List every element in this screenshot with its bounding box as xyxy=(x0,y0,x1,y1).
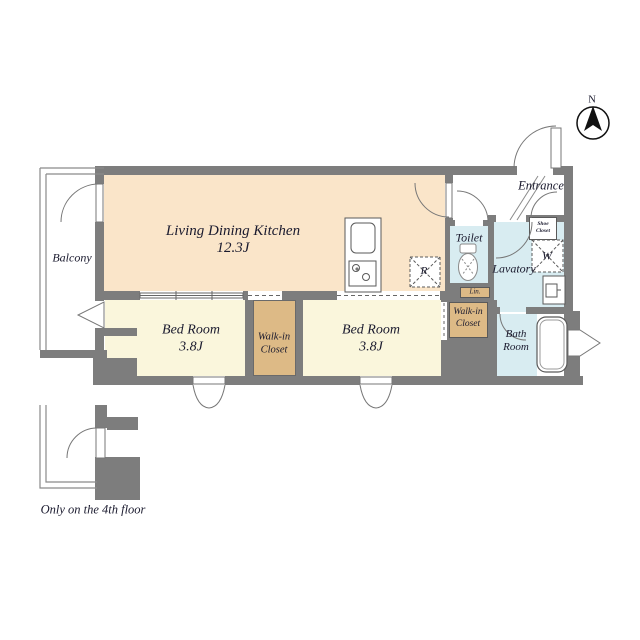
bedroom1-label: Bed Room xyxy=(162,324,220,339)
walkin-closet-middle-label-2: Closet xyxy=(261,344,288,355)
linen-label: Lin. xyxy=(469,288,480,295)
entrance-label: Entrance xyxy=(518,179,564,192)
linework-layer xyxy=(0,0,640,640)
balcony-door xyxy=(61,184,103,222)
compass-icon xyxy=(577,106,609,139)
balcony-label: Balcony xyxy=(52,252,91,265)
floor-plan: Living Dining Kitchen 12.3J Balcony Bed … xyxy=(0,0,640,640)
bathroom-vent-window xyxy=(568,330,600,356)
bathroom-label-2: Room xyxy=(503,342,529,354)
walkin-closet-right-label-2: Closet xyxy=(456,320,480,330)
bedroom1-balcony-door-icon xyxy=(78,302,104,328)
bedroom2-label: Bed Room xyxy=(342,324,400,339)
ldk-label: Living Dining Kitchen xyxy=(166,224,300,240)
kitchen-counter xyxy=(345,218,381,292)
compass-north-label: N xyxy=(588,94,596,105)
kitchen-stove xyxy=(349,261,376,286)
walkin-closet-right-label-1: Walk-in xyxy=(453,308,482,318)
entrance-door xyxy=(514,126,561,168)
toilet-door-arc xyxy=(457,191,488,222)
toilet-fixture xyxy=(459,244,478,281)
washbasin xyxy=(543,276,565,304)
shoe-closet-label-2: Closet xyxy=(536,229,550,235)
ldk-door xyxy=(415,183,452,218)
refrigerator-label: R xyxy=(421,266,428,278)
bathroom-label-1: Bath xyxy=(506,329,527,341)
bathtub xyxy=(537,317,567,372)
toilet-label: Toilet xyxy=(456,232,483,245)
shoe-closet-door-arc xyxy=(531,192,557,218)
inset-balcony-outline xyxy=(40,405,97,488)
footnote-label: Only on the 4th floor xyxy=(41,503,146,516)
bedroom1-size-label: 3.8J xyxy=(179,341,203,356)
shoe-closet-label-1: Shoe xyxy=(537,222,548,228)
bedroom1-window xyxy=(193,377,225,408)
washer-label: W xyxy=(542,250,552,263)
bedroom2-size-label: 3.8J xyxy=(359,341,383,356)
lavatory-label: Lavatory xyxy=(492,263,535,276)
inset-door xyxy=(67,428,105,458)
kitchen-sink xyxy=(351,223,375,253)
walkin-closet-middle-label-1: Walk-in xyxy=(258,331,290,342)
ldk-size-label: 12.3J xyxy=(217,241,250,257)
bedroom2-window xyxy=(360,377,392,408)
lavatory-door-arc xyxy=(496,222,532,258)
